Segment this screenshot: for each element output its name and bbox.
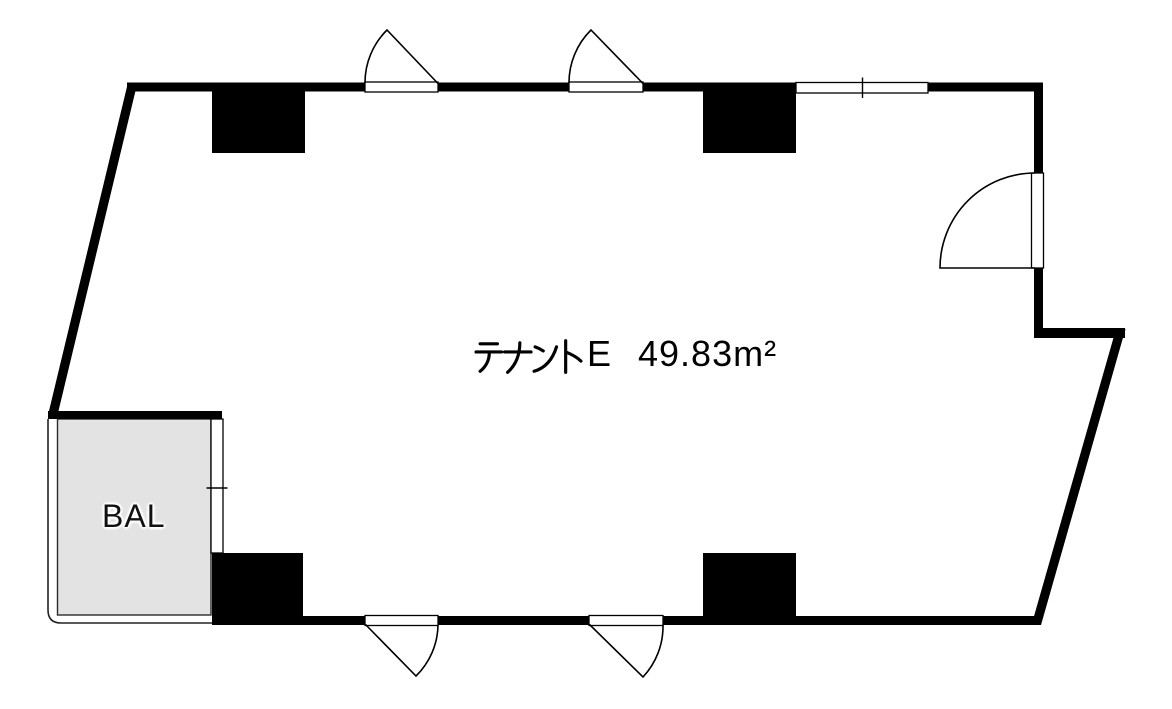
room-area-value: 49.83m²	[638, 333, 777, 375]
right-wall-lower	[1034, 267, 1043, 333]
top-wall-segment-2	[438, 83, 569, 92]
room-name-suffix: E	[587, 333, 612, 375]
door-opening-bottom-1	[365, 616, 438, 626]
bottom-wall-segment-2	[438, 616, 589, 625]
door-swing-right	[940, 173, 1035, 268]
pillar-top-right	[703, 83, 796, 153]
pillar-top-left	[212, 83, 305, 153]
top-wall-segment-4	[928, 83, 1043, 92]
katakana-te-glyph	[476, 344, 501, 372]
floor-plan: E 49.83m² BAL	[0, 0, 1172, 709]
door-swing-top-1	[365, 30, 438, 84]
katakana-n-glyph	[534, 347, 556, 371]
left-diagonal-wall	[48, 83, 138, 416]
door-opening-top-1	[365, 82, 438, 92]
room-label: E 49.83m²	[474, 333, 777, 375]
balcony-top-wall	[48, 411, 222, 419]
katakana-na-glyph	[505, 343, 531, 373]
window-balcony	[211, 419, 223, 553]
pillar-bottom-right	[703, 553, 796, 625]
door-swing-bottom-1	[366, 625, 439, 677]
door-opening-top-2	[569, 82, 643, 92]
door-swing-bottom-2	[590, 625, 664, 678]
door-swing-top-2	[569, 30, 643, 84]
katakana-tenant-glyphs	[474, 335, 584, 375]
door-opening-bottom-2	[589, 616, 663, 626]
pillar-bottom-left	[212, 553, 303, 625]
balcony-label: BAL	[102, 498, 165, 535]
right-jut-wall	[1034, 328, 1125, 338]
right-diagonal-wall	[1032, 329, 1126, 625]
window-group	[207, 78, 929, 554]
katakana-to-glyph	[566, 341, 581, 373]
right-wall-upper	[1034, 83, 1043, 175]
door-opening-right	[1032, 173, 1044, 268]
